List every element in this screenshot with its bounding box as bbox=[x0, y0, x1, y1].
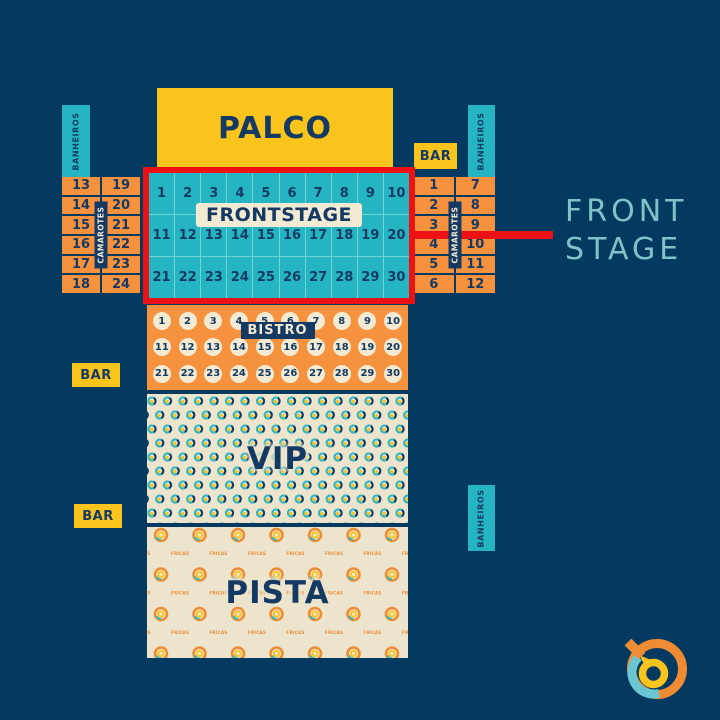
frontstage-seat-24[interactable]: 24 bbox=[227, 257, 252, 298]
bistro-seat-11[interactable]: 11 bbox=[153, 338, 171, 356]
bistro-seat-2[interactable]: 2 bbox=[179, 312, 197, 330]
bistro-seat-24[interactable]: 24 bbox=[230, 365, 248, 383]
frontstage-seat-11[interactable]: 11 bbox=[149, 215, 174, 256]
bistro-seat-25[interactable]: 25 bbox=[256, 365, 274, 383]
banheiros-label: BANHEIROS bbox=[477, 489, 486, 547]
bistro-seat-18[interactable]: 18 bbox=[333, 338, 351, 356]
camarote-left-21[interactable]: 21 bbox=[102, 216, 140, 234]
bistro-seat-27[interactable]: 27 bbox=[307, 365, 325, 383]
frontstage-seat-20[interactable]: 20 bbox=[384, 215, 409, 256]
camarote-left-22[interactable]: 22 bbox=[102, 236, 140, 254]
bar-label: BAR bbox=[420, 149, 451, 164]
camarote-left-20[interactable]: 20 bbox=[102, 197, 140, 215]
camarotes-left-section: 131415161718 192021222324 CAMAROTES bbox=[62, 177, 140, 293]
banheiros-right-bottom[interactable]: BANHEIROS bbox=[468, 485, 495, 551]
bistro-label: BISTRO bbox=[240, 322, 314, 339]
frontstage-seat-26[interactable]: 26 bbox=[280, 257, 305, 298]
bistro-seat-1[interactable]: 1 bbox=[153, 312, 171, 330]
bistro-seat-22[interactable]: 22 bbox=[179, 365, 197, 383]
bistro-seat-29[interactable]: 29 bbox=[358, 365, 376, 383]
bistro-seat-9[interactable]: 9 bbox=[358, 312, 376, 330]
callout-line bbox=[409, 231, 553, 239]
bar-right[interactable]: BAR bbox=[414, 143, 457, 169]
bistro-seat-10[interactable]: 10 bbox=[384, 312, 402, 330]
bistro-seat-3[interactable]: 3 bbox=[204, 312, 222, 330]
bar-label: BAR bbox=[80, 368, 111, 383]
bistro-seat-16[interactable]: 16 bbox=[281, 338, 299, 356]
frontstage-seat-22[interactable]: 22 bbox=[175, 257, 200, 298]
frontstage-section[interactable]: 1234567891011121314151617181920212223242… bbox=[143, 167, 415, 304]
banheiros-label: BANHEIROS bbox=[72, 112, 81, 170]
camarotes-badge: CAMAROTES bbox=[448, 202, 461, 269]
banheiros-left[interactable]: BANHEIROS bbox=[62, 105, 90, 178]
camarote-right-1[interactable]: 1 bbox=[414, 177, 454, 195]
bar-left-upper[interactable]: BAR bbox=[72, 363, 120, 387]
bistro-seat-21[interactable]: 21 bbox=[153, 365, 171, 383]
bistro-seat-17[interactable]: 17 bbox=[307, 338, 325, 356]
banheiros-label: BANHEIROS bbox=[477, 112, 486, 170]
vip-label: VIP bbox=[147, 441, 408, 477]
brand-logo-icon bbox=[620, 634, 692, 706]
frontstage-seat-21[interactable]: 21 bbox=[149, 257, 174, 298]
bar-label: BAR bbox=[82, 509, 113, 524]
bistro-seat-28[interactable]: 28 bbox=[333, 365, 351, 383]
bistro-seat-15[interactable]: 15 bbox=[256, 338, 274, 356]
bistro-seat-grid: 1234567891011121314151617181920212223242… bbox=[147, 305, 408, 390]
stage-palco: PALCO bbox=[157, 88, 393, 168]
camarote-left-23[interactable]: 23 bbox=[102, 256, 140, 274]
camarote-left-18[interactable]: 18 bbox=[62, 275, 100, 293]
frontstage-seat-1[interactable]: 1 bbox=[149, 173, 174, 214]
bistro-seat-30[interactable]: 30 bbox=[384, 365, 402, 383]
camarote-left-24[interactable]: 24 bbox=[102, 275, 140, 293]
camarote-right-12[interactable]: 12 bbox=[456, 275, 496, 293]
bistro-section[interactable]: 1234567891011121314151617181920212223242… bbox=[147, 305, 408, 390]
camarote-left-19[interactable]: 19 bbox=[102, 177, 140, 195]
pista-section[interactable]: FRICAS FRICAS PISTA bbox=[147, 527, 408, 658]
vip-section[interactable]: VIP bbox=[147, 394, 408, 523]
camarote-right-6[interactable]: 6 bbox=[414, 275, 454, 293]
bistro-seat-8[interactable]: 8 bbox=[333, 312, 351, 330]
frontstage-seat-10[interactable]: 10 bbox=[384, 173, 409, 214]
bistro-seat-12[interactable]: 12 bbox=[179, 338, 197, 356]
camarote-right-7[interactable]: 7 bbox=[456, 177, 496, 195]
camarotes-badge: CAMAROTES bbox=[95, 202, 108, 269]
bistro-seat-19[interactable]: 19 bbox=[358, 338, 376, 356]
frontstage-seat-grid: 1234567891011121314151617181920212223242… bbox=[149, 173, 409, 298]
frontstage-label: FRONTSTAGE bbox=[196, 203, 362, 227]
frontstage-seat-29[interactable]: 29 bbox=[358, 257, 383, 298]
bistro-seat-20[interactable]: 20 bbox=[384, 338, 402, 356]
frontstage-seat-23[interactable]: 23 bbox=[201, 257, 226, 298]
camarote-left-13[interactable]: 13 bbox=[62, 177, 100, 195]
callout-line2: STAGE bbox=[565, 231, 687, 269]
bistro-seat-13[interactable]: 13 bbox=[204, 338, 222, 356]
pista-label: PISTA bbox=[147, 575, 408, 611]
venue-seat-map: PALCO BANHEIROS BANHEIROS BANHEIROS BAR … bbox=[0, 0, 720, 720]
bar-left-lower[interactable]: BAR bbox=[74, 504, 122, 528]
bistro-seat-14[interactable]: 14 bbox=[230, 338, 248, 356]
frontstage-seat-28[interactable]: 28 bbox=[332, 257, 357, 298]
camarotes-left-col2: 192021222324 bbox=[102, 177, 140, 293]
frontstage-seat-27[interactable]: 27 bbox=[306, 257, 331, 298]
callout-line1: FRONT bbox=[565, 193, 687, 231]
bistro-seat-23[interactable]: 23 bbox=[204, 365, 222, 383]
frontstage-seat-25[interactable]: 25 bbox=[253, 257, 278, 298]
bistro-seat-26[interactable]: 26 bbox=[281, 365, 299, 383]
frontstage-callout: FRONT STAGE bbox=[565, 193, 687, 269]
banheiros-right-top[interactable]: BANHEIROS bbox=[468, 105, 495, 178]
frontstage-seat-30[interactable]: 30 bbox=[384, 257, 409, 298]
stage-label: PALCO bbox=[218, 111, 332, 146]
